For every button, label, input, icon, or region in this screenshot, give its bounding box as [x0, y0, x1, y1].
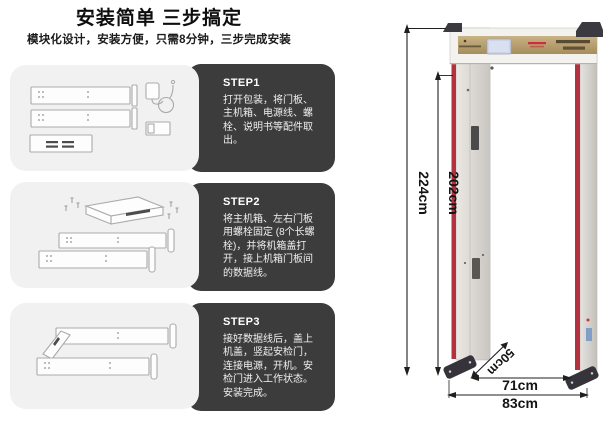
left-top-cap [443, 23, 462, 32]
step3-image-card [10, 303, 199, 409]
ir-sensor-dot [490, 66, 493, 69]
step2-card: STEP2 将主机箱、左右门板用螺栓固定 (8个长螺栓)，并将机箱盖打开，接上机… [187, 183, 335, 291]
screw-dot [482, 254, 484, 256]
step2-label: STEP2 [223, 196, 317, 208]
right-top-cap [576, 22, 603, 37]
gate-header-panel [450, 28, 597, 70]
lower-socket [472, 258, 480, 279]
right-led-strip [575, 38, 580, 370]
power-adapter-icon [146, 80, 175, 112]
step1-image-card [10, 65, 199, 171]
gate-right-pillar [575, 26, 597, 372]
step3-label: STEP3 [223, 316, 317, 328]
product-infographic: { "page": { "background": "#ffffff" }, "… [0, 0, 615, 430]
outer-width-label: 83cm [502, 395, 538, 411]
host-control-box-icon [86, 197, 163, 224]
inner-width-label: 71cm [502, 377, 538, 393]
manual-box-icon [30, 135, 92, 152]
indicator-dot [587, 319, 590, 322]
step2-illustration-icon [10, 182, 199, 288]
step1-text: 打开包装，将门板、主机箱、电源线、螺栓、说明书等配件取出。 [223, 94, 317, 148]
outer-height-label: 224cm [416, 171, 432, 215]
step1-card: STEP1 打开包装，将门板、主机箱、电源线、螺栓、说明书等配件取出。 [187, 64, 335, 172]
connector-socket [471, 126, 479, 150]
page-subtitle: 模块化设计，安装方便，只需8分钟，三步完成安装 [0, 31, 318, 47]
step3-illustration-icon [10, 303, 199, 409]
dimension-inner-height [435, 71, 453, 376]
inner-height-label: 202cm [446, 171, 462, 215]
screw-dot [467, 89, 470, 92]
metal-detector-dimension-diagram: 224cm 202cm 50cm 71cm 83cm [360, 0, 615, 430]
step1-label: STEP1 [223, 77, 317, 89]
door-panel-2-icon [39, 247, 155, 272]
door-panel-2-icon [37, 354, 157, 379]
accessory-box-icon [146, 122, 170, 135]
step2-text: 将主机箱、左右门板用螺栓固定 (8个长螺栓)，并将机箱盖打开，接上机箱门板间的数… [223, 213, 317, 280]
page-title: 安装简单 三步搞定 [0, 3, 318, 30]
label-sticker [586, 328, 592, 341]
step3-text: 接好数据线后，盖上机盖，竖起安检门，连接电源，开机。安检门进入工作状态。安装完成… [223, 333, 317, 400]
step1-illustration-icon [10, 65, 199, 171]
door-panel-2-icon [31, 108, 137, 129]
door-panel-1-icon [56, 324, 176, 348]
step3-card: STEP3 接好数据线后，盖上机盖，竖起安检门，连接电源，开机。安检门进入工作状… [187, 303, 335, 411]
screw-dot [464, 262, 466, 264]
door-panel-1-icon [31, 85, 137, 106]
lcd-screen [487, 39, 511, 54]
door-panel-1-icon [59, 229, 174, 252]
step2-image-card [10, 182, 199, 288]
